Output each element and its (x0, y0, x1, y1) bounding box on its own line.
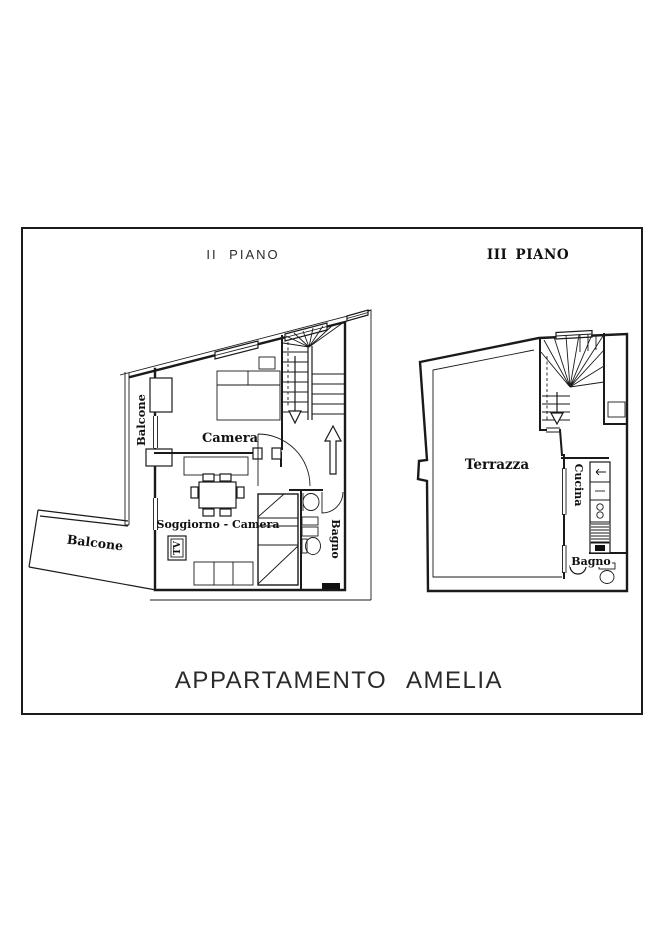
wardrobe (258, 494, 298, 585)
room-label-bagno-ii: Bagno (329, 519, 342, 558)
floor-plan-ii-piano: Balcone (29, 310, 371, 600)
oven (595, 545, 605, 551)
sheet-title: APPARTAMENTO AMELIA (175, 667, 503, 694)
room-label-cucina: Cucina (572, 464, 585, 507)
nightstand (259, 357, 275, 369)
sofa (194, 562, 253, 585)
room-label-terrazza: Terrazza (465, 457, 529, 473)
bed (217, 371, 280, 420)
room-label-bagno-iii: Bagno (571, 555, 610, 568)
staircase (541, 335, 604, 433)
radiator (322, 583, 340, 589)
stove-icon (591, 524, 609, 542)
floor-label-iii-piano: III PIANO (487, 247, 569, 263)
stairs-down-arrow-icon (551, 413, 563, 424)
balcony-left-parapet (125, 372, 129, 525)
door-jamb (253, 448, 262, 459)
balcony-bottom: Balcone (29, 510, 156, 590)
dining-table (191, 474, 244, 516)
room-label-balcone-bottom: Balcone (66, 532, 124, 554)
door-jamb (272, 448, 281, 459)
floor-plan-sheet: II PIANO III PIANO Balcone (0, 0, 665, 940)
floor-plan-drawing: II PIANO III PIANO Balcone (0, 0, 665, 940)
sideboard (184, 457, 248, 475)
vestibule-fixture (608, 402, 625, 417)
door-swing-bagno (322, 492, 343, 513)
tv-label: TV (173, 540, 183, 555)
toilet (600, 571, 614, 584)
floor-label-ii-piano: II PIANO (206, 247, 279, 262)
tv-cabinet: TV (168, 536, 186, 560)
interior-walls (540, 334, 627, 578)
stair-window (556, 331, 592, 340)
stairs-down-arrow-icon (289, 411, 301, 423)
wall-pier (146, 449, 172, 466)
landing-door (546, 428, 560, 432)
staircase (282, 322, 345, 474)
room-label-balcone-left: Balcone (134, 394, 148, 446)
floor-plan-iii-piano: Terrazza Cucina Bagno (418, 331, 627, 592)
wall-pier (150, 378, 172, 412)
kitchen-counter (590, 462, 610, 553)
room-label-soggiorno-camera: Soggiorno - Camera (157, 518, 280, 531)
room-label-camera: Camera (202, 431, 259, 446)
door-swing-hall (258, 434, 310, 486)
stairs-up-arrow-icon (325, 426, 341, 474)
